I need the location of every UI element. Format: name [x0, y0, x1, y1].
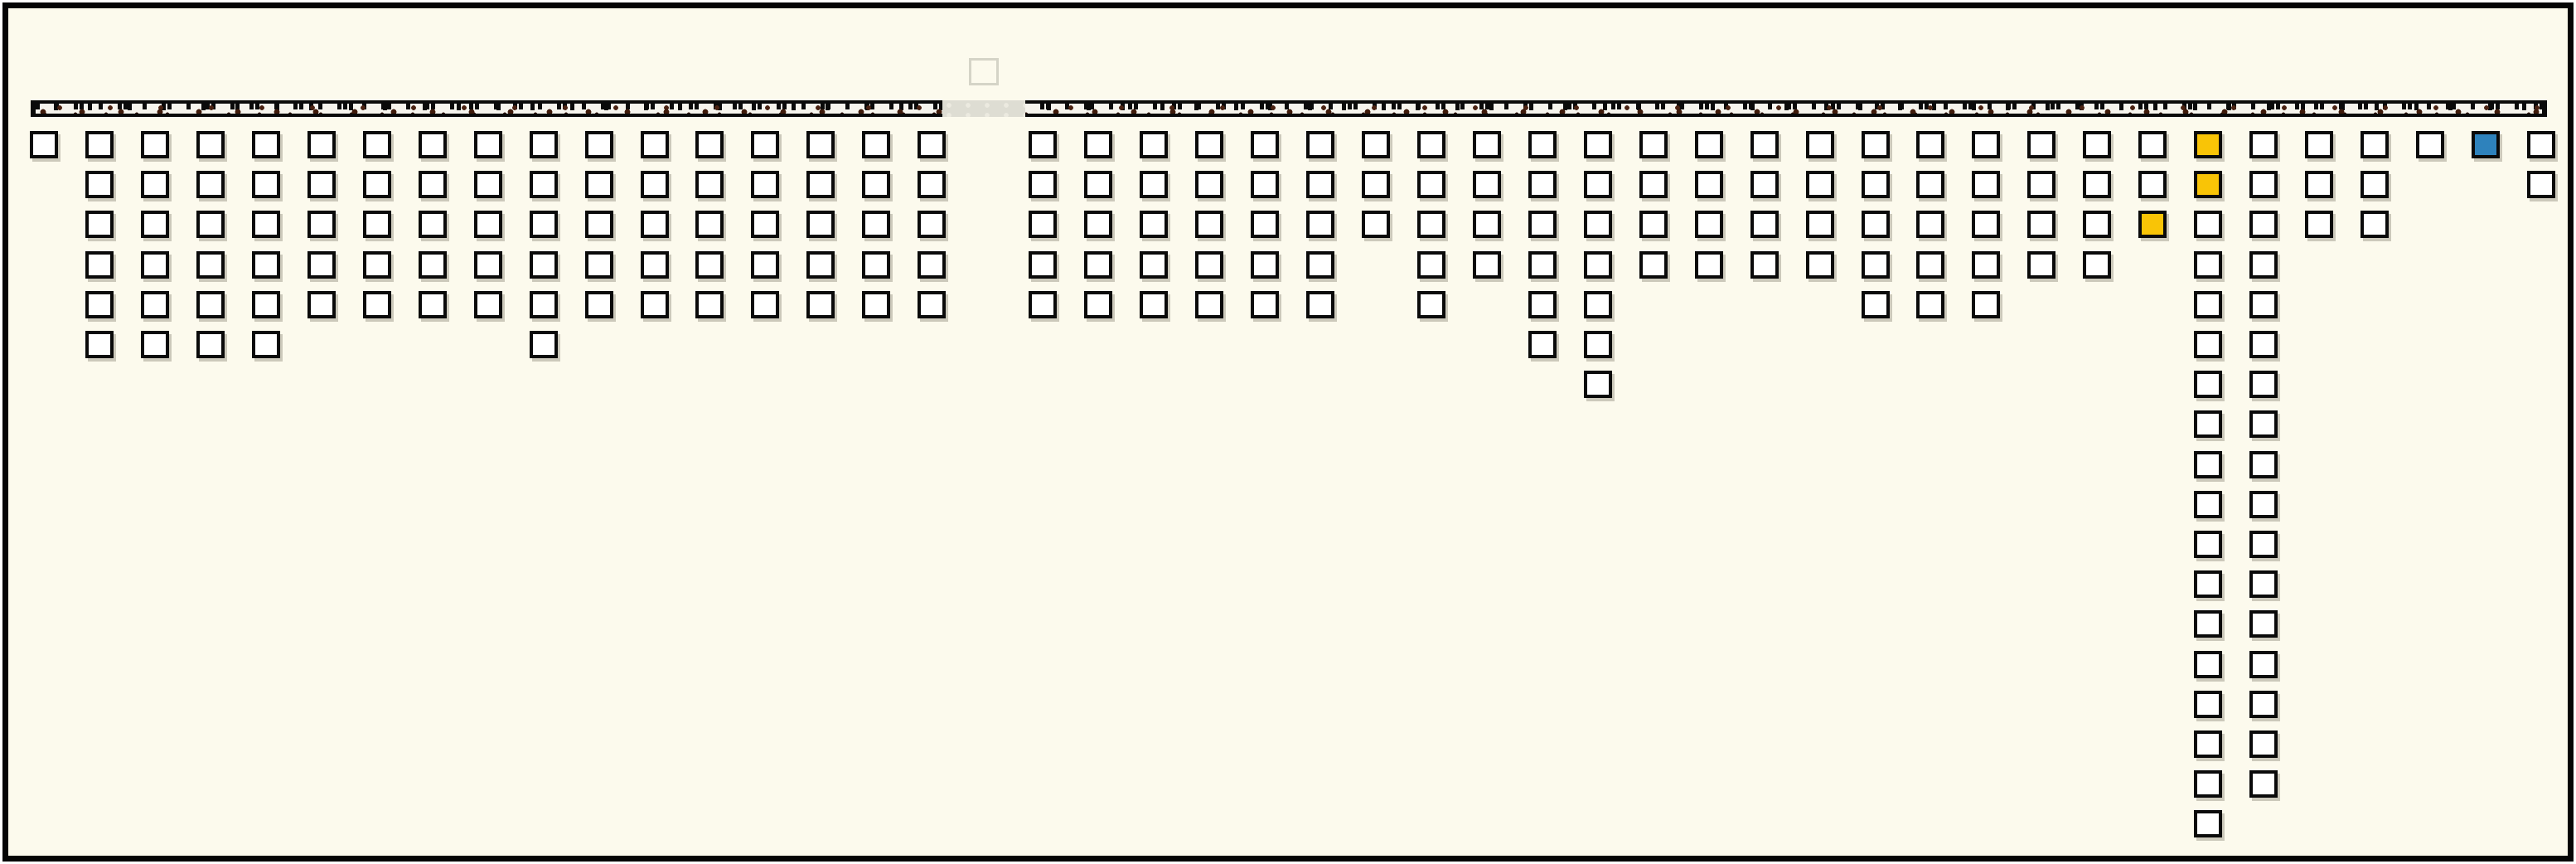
grid-square[interactable] — [2249, 371, 2278, 398]
grid-square[interactable] — [2305, 211, 2333, 238]
grid-square[interactable] — [2194, 251, 2222, 279]
grid-square[interactable] — [2083, 251, 2111, 279]
grid-square[interactable] — [918, 131, 946, 158]
grid-square[interactable] — [85, 131, 114, 158]
grid-square[interactable] — [862, 291, 890, 318]
grid-square[interactable] — [1251, 131, 1279, 158]
grid-square[interactable] — [1140, 251, 1168, 279]
grid-square[interactable] — [1362, 171, 1390, 198]
grid-square[interactable] — [806, 131, 835, 158]
grid-square[interactable] — [1584, 211, 1612, 238]
grid-square[interactable] — [1584, 371, 1612, 398]
grid-square[interactable] — [1528, 251, 1557, 279]
grid-square[interactable] — [307, 211, 336, 238]
grid-square[interactable] — [1251, 211, 1279, 238]
grid-square[interactable] — [2249, 211, 2278, 238]
grid-square[interactable] — [1584, 251, 1612, 279]
grid-square[interactable] — [862, 171, 890, 198]
ghost-square-marker — [969, 58, 999, 85]
grid-square[interactable] — [1195, 131, 1223, 158]
grid-square[interactable] — [585, 291, 613, 318]
grid-square[interactable] — [1251, 291, 1279, 318]
grid-square-yellow[interactable] — [2138, 211, 2167, 238]
grid-square[interactable] — [1639, 211, 1668, 238]
grid-square[interactable] — [30, 131, 58, 158]
grid-square[interactable] — [1195, 171, 1223, 198]
grid-square[interactable] — [1251, 171, 1279, 198]
grid-square[interactable] — [2305, 171, 2333, 198]
grid-square[interactable] — [918, 291, 946, 318]
grid-square[interactable] — [196, 171, 225, 198]
grid-square[interactable] — [2138, 131, 2167, 158]
grid-square[interactable] — [2138, 171, 2167, 198]
grid-square[interactable] — [85, 291, 114, 318]
grid-square[interactable] — [252, 131, 280, 158]
grid-square[interactable] — [862, 131, 890, 158]
grid-square[interactable] — [1195, 291, 1223, 318]
grid-square[interactable] — [363, 291, 391, 318]
grid-square[interactable] — [2527, 171, 2555, 198]
grid-square[interactable] — [474, 211, 502, 238]
grid-square[interactable] — [1195, 211, 1223, 238]
grid-square[interactable] — [1251, 251, 1279, 279]
grid-square[interactable] — [2027, 211, 2055, 238]
grid-square[interactable] — [1806, 251, 1834, 279]
grid-square[interactable] — [2249, 531, 2278, 558]
grid-square[interactable] — [2194, 731, 2222, 758]
grid-square[interactable] — [1639, 171, 1668, 198]
grid-square[interactable] — [2194, 291, 2222, 318]
grid-square[interactable] — [1916, 211, 1944, 238]
grid-square[interactable] — [751, 291, 779, 318]
grid-square[interactable] — [2194, 451, 2222, 478]
grid-square[interactable] — [585, 171, 613, 198]
grid-square[interactable] — [1750, 131, 1779, 158]
grid-square[interactable] — [1084, 171, 1112, 198]
grid-square[interactable] — [751, 251, 779, 279]
grid-square[interactable] — [1140, 291, 1168, 318]
grid-square[interactable] — [1473, 131, 1501, 158]
grid-square[interactable] — [695, 251, 724, 279]
grid-square[interactable] — [695, 171, 724, 198]
grid-square[interactable] — [419, 291, 447, 318]
grid-square[interactable] — [2194, 371, 2222, 398]
grid-square[interactable] — [2527, 131, 2555, 158]
grid-square[interactable] — [2194, 531, 2222, 558]
grid-square[interactable] — [1862, 131, 1890, 158]
grid-square[interactable] — [419, 131, 447, 158]
grid-square[interactable] — [2249, 251, 2278, 279]
grid-square[interactable] — [2249, 171, 2278, 198]
grid-square[interactable] — [2194, 610, 2222, 638]
grid-square[interactable] — [1473, 211, 1501, 238]
grid-square[interactable] — [2194, 211, 2222, 238]
grid-square[interactable] — [806, 171, 835, 198]
grid-square[interactable] — [307, 171, 336, 198]
grid-square[interactable] — [252, 211, 280, 238]
grid-square[interactable] — [1306, 251, 1334, 279]
grid-square[interactable] — [419, 251, 447, 279]
grid-square[interactable] — [2249, 491, 2278, 518]
grid-square[interactable] — [474, 291, 502, 318]
grid-square[interactable] — [2249, 291, 2278, 318]
grid-square[interactable] — [1528, 211, 1557, 238]
grid-square[interactable] — [1362, 131, 1390, 158]
grid-square[interactable] — [2249, 410, 2278, 438]
grid-square[interactable] — [2249, 691, 2278, 718]
grid-square[interactable] — [196, 131, 225, 158]
grid-square[interactable] — [641, 131, 669, 158]
grid-square[interactable] — [1362, 211, 1390, 238]
grid-square[interactable] — [196, 291, 225, 318]
grid-square[interactable] — [141, 251, 169, 279]
grid-square[interactable] — [1639, 131, 1668, 158]
grid-square[interactable] — [530, 171, 558, 198]
grid-square-yellow[interactable] — [2194, 171, 2222, 198]
grid-square[interactable] — [2194, 331, 2222, 358]
grid-square[interactable] — [1084, 291, 1112, 318]
grid-square[interactable] — [1584, 131, 1612, 158]
grid-square[interactable] — [1306, 171, 1334, 198]
grid-square[interactable] — [2361, 211, 2389, 238]
grid-square[interactable] — [1306, 291, 1334, 318]
grid-square[interactable] — [585, 211, 613, 238]
grid-square[interactable] — [751, 131, 779, 158]
grid-square[interactable] — [1528, 291, 1557, 318]
grid-square[interactable] — [252, 171, 280, 198]
visualization-canvas — [0, 0, 2576, 864]
grid-square[interactable] — [585, 131, 613, 158]
grid-square[interactable] — [918, 171, 946, 198]
grid-square[interactable] — [1140, 131, 1168, 158]
grid-square[interactable] — [695, 211, 724, 238]
grid-square[interactable] — [363, 131, 391, 158]
grid-square[interactable] — [641, 211, 669, 238]
grid-square[interactable] — [1916, 171, 1944, 198]
grid-square[interactable] — [252, 291, 280, 318]
grid-square[interactable] — [2249, 131, 2278, 158]
grid-square[interactable] — [2194, 570, 2222, 598]
grid-square[interactable] — [2249, 770, 2278, 798]
grid-square[interactable] — [141, 331, 169, 358]
timeline-strip[interactable] — [31, 100, 2547, 117]
grid-square[interactable] — [1862, 171, 1890, 198]
grid-square[interactable] — [2194, 651, 2222, 678]
grid-square[interactable] — [307, 251, 336, 279]
grid-square[interactable] — [2194, 491, 2222, 518]
grid-square[interactable] — [1084, 251, 1112, 279]
grid-square[interactable] — [1972, 291, 2000, 318]
grid-square[interactable] — [474, 131, 502, 158]
grid-square[interactable] — [585, 251, 613, 279]
grid-square[interactable] — [1916, 251, 1944, 279]
grid-square[interactable] — [806, 291, 835, 318]
grid-square[interactable] — [307, 131, 336, 158]
grid-square[interactable] — [1195, 251, 1223, 279]
grid-square[interactable] — [363, 211, 391, 238]
grid-square[interactable] — [196, 251, 225, 279]
grid-square[interactable] — [1750, 251, 1779, 279]
grid-square[interactable] — [85, 251, 114, 279]
grid-square[interactable] — [1306, 131, 1334, 158]
grid-square[interactable] — [1417, 251, 1445, 279]
grid-square[interactable] — [2361, 171, 2389, 198]
grid-square[interactable] — [1695, 131, 1723, 158]
grid-square[interactable] — [2249, 331, 2278, 358]
grid-square[interactable] — [1417, 211, 1445, 238]
grid-square[interactable] — [1972, 171, 2000, 198]
grid-square[interactable] — [2027, 171, 2055, 198]
grid-square[interactable] — [2249, 731, 2278, 758]
grid-square[interactable] — [530, 291, 558, 318]
grid-square[interactable] — [2027, 131, 2055, 158]
grid-square[interactable] — [862, 251, 890, 279]
grid-square[interactable] — [1584, 171, 1612, 198]
grid-square[interactable] — [2194, 410, 2222, 438]
grid-square[interactable] — [1695, 171, 1723, 198]
grid-square[interactable] — [1528, 331, 1557, 358]
grid-square[interactable] — [2361, 131, 2389, 158]
grid-square[interactable] — [1306, 211, 1334, 238]
grid-square[interactable] — [1140, 211, 1168, 238]
grid-square[interactable] — [1584, 331, 1612, 358]
grid-square[interactable] — [530, 251, 558, 279]
grid-square[interactable] — [1417, 291, 1445, 318]
grid-square[interactable] — [2083, 131, 2111, 158]
grid-square[interactable] — [196, 331, 225, 358]
grid-square[interactable] — [1584, 291, 1612, 318]
grid-square[interactable] — [751, 171, 779, 198]
grid-square[interactable] — [751, 211, 779, 238]
grid-square[interactable] — [641, 171, 669, 198]
grid-square[interactable] — [1862, 251, 1890, 279]
grid-square[interactable] — [1029, 291, 1057, 318]
grid-square[interactable] — [419, 211, 447, 238]
grid-square[interactable] — [530, 131, 558, 158]
grid-square[interactable] — [419, 171, 447, 198]
grid-square[interactable] — [474, 171, 502, 198]
grid-square[interactable] — [1916, 291, 1944, 318]
grid-square[interactable] — [363, 251, 391, 279]
grid-square[interactable] — [1528, 171, 1557, 198]
grid-square[interactable] — [1862, 211, 1890, 238]
grid-square[interactable] — [141, 171, 169, 198]
grid-square[interactable] — [1806, 211, 1834, 238]
grid-square[interactable] — [2416, 131, 2444, 158]
grid-square-blue[interactable] — [2472, 131, 2500, 158]
grid-square[interactable] — [1029, 251, 1057, 279]
grid-square[interactable] — [1029, 171, 1057, 198]
grid-square[interactable] — [1417, 171, 1445, 198]
grid-square[interactable] — [1972, 251, 2000, 279]
grid-square[interactable] — [2194, 691, 2222, 718]
grid-square[interactable] — [1473, 251, 1501, 279]
grid-square[interactable] — [1417, 131, 1445, 158]
grid-square[interactable] — [695, 131, 724, 158]
grid-square[interactable] — [1639, 251, 1668, 279]
grid-square[interactable] — [141, 291, 169, 318]
grid-square[interactable] — [2027, 251, 2055, 279]
grid-square[interactable] — [2249, 570, 2278, 598]
grid-square[interactable] — [1029, 211, 1057, 238]
grid-square[interactable] — [1972, 211, 2000, 238]
grid-square[interactable] — [2249, 651, 2278, 678]
grid-square[interactable] — [1806, 171, 1834, 198]
grid-square-yellow[interactable] — [2194, 131, 2222, 158]
grid-square[interactable] — [2194, 770, 2222, 798]
grid-square[interactable] — [85, 331, 114, 358]
grid-square[interactable] — [862, 211, 890, 238]
grid-square[interactable] — [1916, 131, 1944, 158]
grid-square[interactable] — [1862, 291, 1890, 318]
grid-square[interactable] — [2249, 451, 2278, 478]
grid-square[interactable] — [806, 251, 835, 279]
grid-square[interactable] — [1473, 171, 1501, 198]
grid-square[interactable] — [806, 211, 835, 238]
grid-square[interactable] — [1084, 131, 1112, 158]
grid-square[interactable] — [641, 291, 669, 318]
grid-square[interactable] — [2249, 610, 2278, 638]
grid-square[interactable] — [363, 171, 391, 198]
grid-square[interactable] — [141, 211, 169, 238]
timeline-highlight-segment[interactable] — [942, 100, 1025, 117]
grid-square[interactable] — [196, 211, 225, 238]
grid-square[interactable] — [85, 171, 114, 198]
grid-square[interactable] — [2083, 171, 2111, 198]
grid-square[interactable] — [695, 291, 724, 318]
grid-square[interactable] — [2305, 131, 2333, 158]
grid-square[interactable] — [1695, 251, 1723, 279]
grid-square[interactable] — [641, 251, 669, 279]
grid-square[interactable] — [1029, 131, 1057, 158]
grid-square[interactable] — [530, 211, 558, 238]
grid-square[interactable] — [1140, 171, 1168, 198]
grid-square[interactable] — [141, 131, 169, 158]
grid-square[interactable] — [530, 331, 558, 358]
grid-square[interactable] — [1695, 211, 1723, 238]
grid-square[interactable] — [1806, 131, 1834, 158]
grid-square[interactable] — [307, 291, 336, 318]
grid-square[interactable] — [918, 251, 946, 279]
grid-square[interactable] — [1750, 171, 1779, 198]
grid-square[interactable] — [918, 211, 946, 238]
grid-square[interactable] — [1972, 131, 2000, 158]
grid-square[interactable] — [1528, 131, 1557, 158]
grid-square[interactable] — [1084, 211, 1112, 238]
grid-square[interactable] — [1750, 211, 1779, 238]
grid-square[interactable] — [252, 331, 280, 358]
grid-square[interactable] — [2194, 810, 2222, 837]
grid-square[interactable] — [474, 251, 502, 279]
grid-square[interactable] — [85, 211, 114, 238]
grid-square[interactable] — [2083, 211, 2111, 238]
grid-square[interactable] — [252, 251, 280, 279]
